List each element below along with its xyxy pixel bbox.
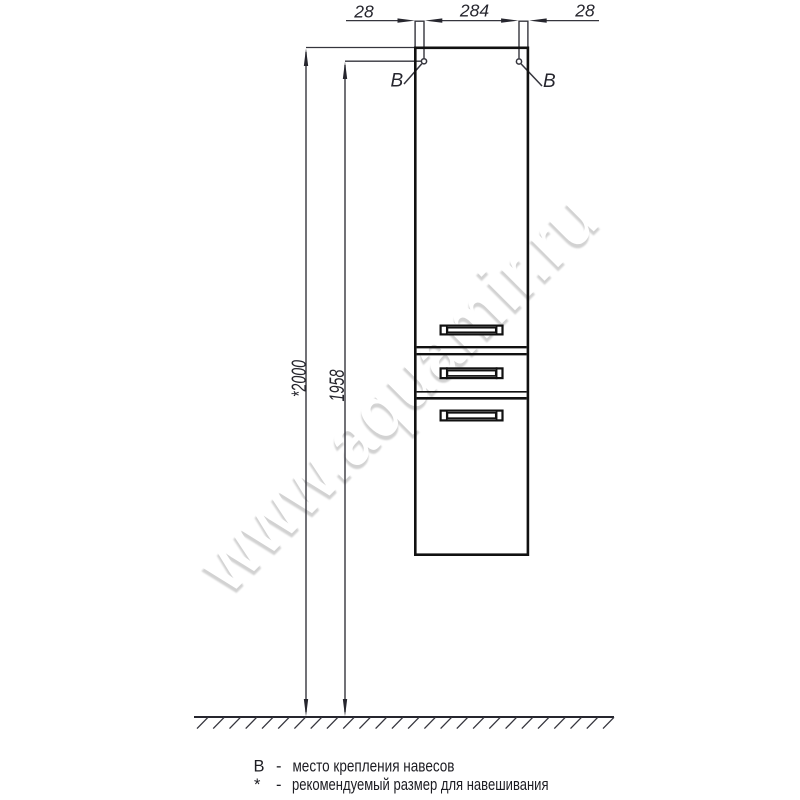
svg-text:В: В bbox=[543, 71, 556, 92]
svg-text:www.aquamir.ru: www.aquamir.ru bbox=[181, 174, 615, 608]
svg-text:1958: 1958 bbox=[325, 369, 349, 401]
svg-text:28: 28 bbox=[574, 1, 595, 21]
svg-text:В-место крепления навесов: В-место крепления навесов bbox=[254, 758, 455, 776]
svg-text:*-рекомендуемый размер для нав: *-рекомендуемый размер для навешивания bbox=[254, 776, 549, 794]
svg-text:284: 284 bbox=[459, 1, 489, 21]
svg-text:28: 28 bbox=[353, 2, 374, 22]
svg-text:*2000: *2000 bbox=[287, 360, 311, 397]
svg-text:В: В bbox=[391, 71, 404, 92]
